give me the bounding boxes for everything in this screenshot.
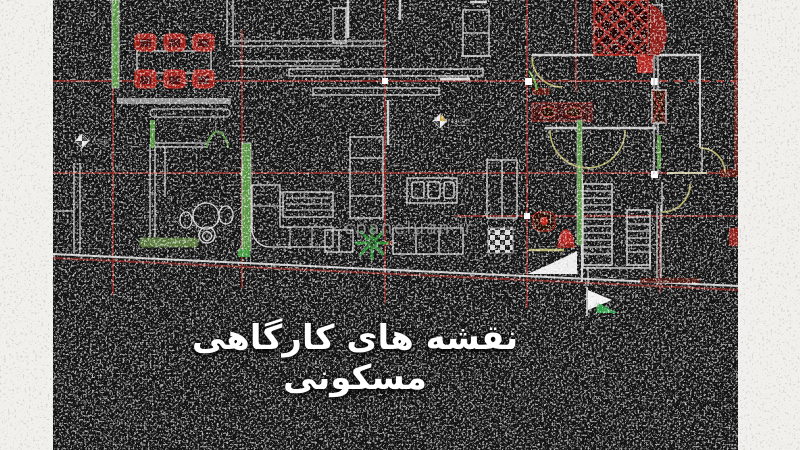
poster-title: نقشه های کارگاهی مسکونی [140, 318, 570, 398]
watermark: cpaneluan.ir [344, 218, 474, 239]
poster: 0.56 ±0.00 cpaneluan.ir نقشه های کارگاهی… [0, 0, 800, 450]
